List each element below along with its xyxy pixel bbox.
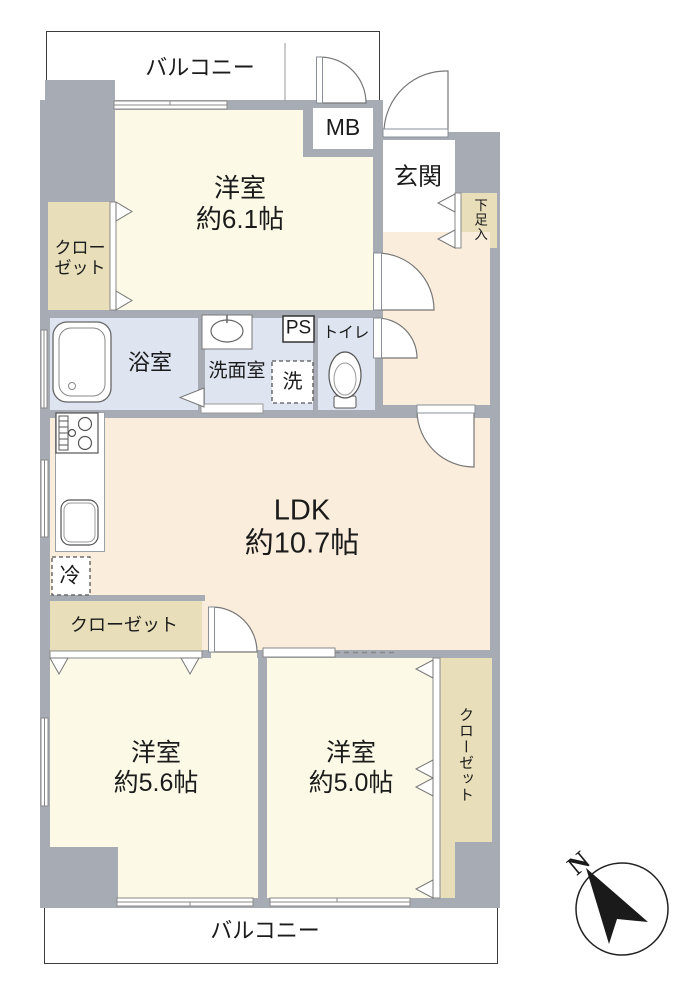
closet-ldk-label: クローゼット [70,615,178,637]
north-label: N [561,845,596,881]
kitchen-counter [55,412,105,552]
bedroom-50-label: 洋室 約5.0帖 [309,738,394,798]
balcony-top-label: バルコニー [145,55,255,81]
floor-plan: N バルコニー バルコニー 洋室 約6.1帖 クロー ゼット MB 玄関 下足入… [0,0,680,1000]
bedroom-61-label: 洋室 約6.1帖 [196,173,284,235]
wall-block-bottom-right [455,842,497,898]
ps-label: PS [286,318,311,341]
closet-bedroom-61-label: クロー ゼット [55,239,106,280]
north-arrow [586,868,648,944]
bedroom-56-label: 洋室 約5.6帖 [114,738,199,798]
genkan-label: 玄関 [394,164,442,193]
wall-block-bottom-left [46,847,118,898]
room-hallway [383,232,490,405]
shoe-cabinet-label: 下足入 [471,198,487,242]
washer-label: 洗 [283,370,303,394]
entrance-corridor [383,100,500,132]
mb-label: MB [326,114,361,142]
wall-block-top-left [45,80,115,202]
balcony-bottom-label: バルコニー [210,918,320,944]
fridge-label: 冷 [60,563,81,588]
bath-label: 浴室 [128,350,172,376]
compass-icon: N [561,845,668,955]
ldk-label: LDK 約10.7帖 [245,495,359,562]
washroom-label: 洗面室 [208,361,265,384]
toilet-label: トイレ [323,325,370,344]
closet-bedroom-50-label: クローゼット [456,707,474,803]
closet-bedroom-50-ext [440,842,455,898]
room-bathroom [50,318,198,410]
